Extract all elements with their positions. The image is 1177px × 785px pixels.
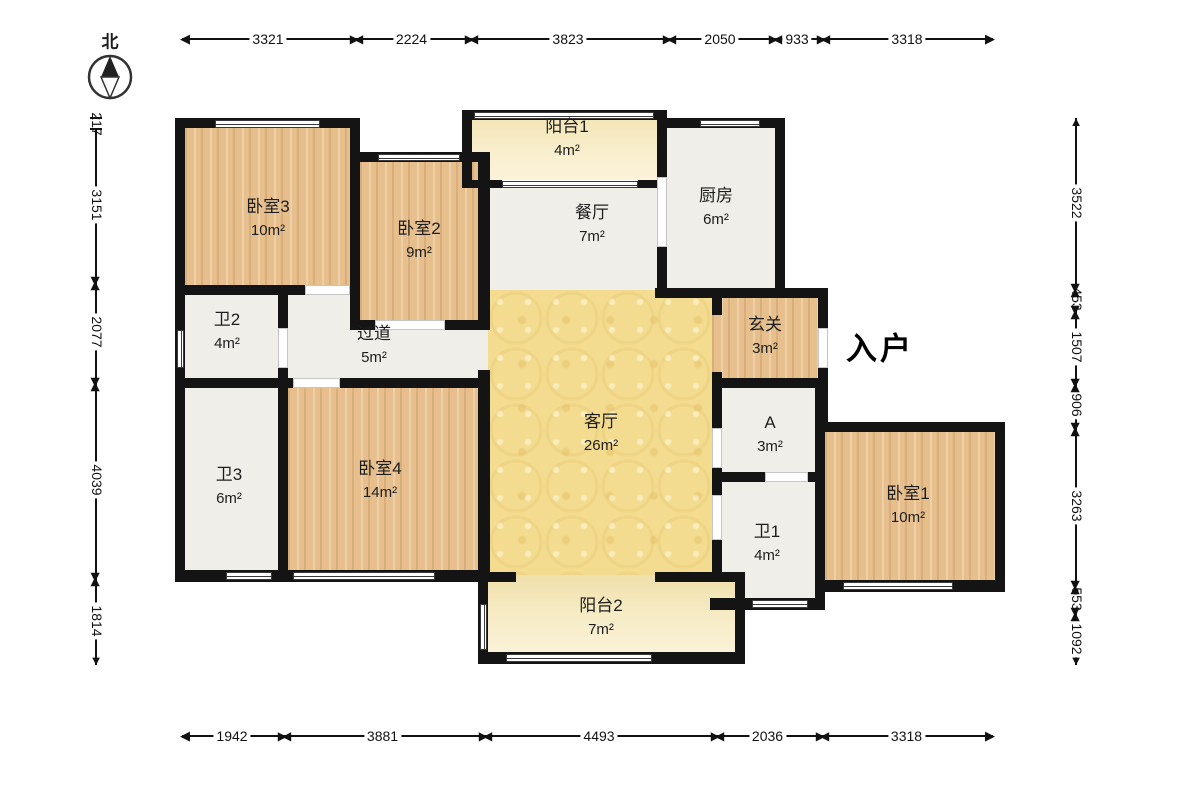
room-label-roomA: A3m²	[757, 410, 783, 458]
dimension-marker: ▶◀	[350, 33, 358, 45]
dimension-segment: 2224	[354, 38, 469, 40]
dimension-marker: ▶◀	[465, 33, 473, 45]
wall-segment	[488, 572, 516, 582]
wall-segment	[712, 472, 765, 482]
dimension-segment: 4493	[483, 735, 715, 737]
dimension-marker: ◀	[180, 730, 190, 742]
room-label-bedroom4: 卧室414m²	[358, 456, 401, 504]
wall-segment	[712, 378, 820, 388]
wall-segment	[350, 118, 360, 330]
door-opening	[278, 328, 288, 368]
room-label-balcony2: 阳台27m²	[579, 593, 622, 641]
room-label-hallway: 玄关3m²	[748, 312, 782, 360]
dimension-marker: ▶◀	[1070, 608, 1082, 616]
room-label-living: 客厅26m²	[584, 409, 618, 457]
wall-segment	[815, 422, 1005, 432]
dimension-marker: ▶◀	[817, 33, 825, 45]
wall-segment	[478, 152, 490, 328]
wall-segment	[655, 572, 745, 582]
window	[502, 181, 638, 188]
door-opening	[712, 428, 722, 468]
window	[226, 572, 272, 580]
dimension-marker: ▶	[985, 33, 995, 45]
dimension-marker: ▲	[1070, 116, 1083, 128]
room-label-kitchen: 厨房6m²	[699, 183, 733, 231]
room-label-balcony1: 阳台14m²	[545, 114, 588, 162]
floor-plan: 北	[0, 0, 1177, 785]
dimension-marker: ▶◀	[1070, 284, 1082, 292]
window	[700, 120, 760, 127]
door-opening	[765, 472, 808, 482]
dimension-segment: 1507	[1075, 310, 1077, 383]
dimension-marker	[90, 117, 102, 119]
dimension-segment: 933	[773, 38, 821, 40]
dimension-segment: 3522	[1075, 118, 1077, 288]
entry-label: 入户	[846, 324, 914, 369]
room-label-corridor: 过道5m²	[357, 321, 391, 369]
wall-segment	[478, 370, 490, 582]
dimension-marker: ▶◀	[278, 730, 286, 742]
window	[378, 154, 460, 161]
dimension-marker: ▶◀	[1070, 306, 1082, 314]
dimension-segment: 2050	[667, 38, 773, 40]
dimension-marker: ▶	[985, 730, 995, 742]
window	[177, 330, 184, 368]
room-label-bath1: 卫14m²	[754, 519, 780, 567]
dimension-marker: ▼	[1070, 655, 1083, 667]
door-opening	[657, 177, 667, 247]
dimension-marker: ▶◀	[816, 730, 824, 742]
window	[480, 604, 487, 650]
room-label-bedroom2: 卧室29m²	[397, 216, 440, 264]
door-opening	[293, 378, 340, 388]
room-label-bath2: 卫24m²	[214, 307, 240, 355]
window	[215, 120, 320, 128]
dimension-marker: ▶◀	[90, 378, 102, 386]
dimension-segment: 1942	[182, 735, 282, 737]
dimension-marker: ▶◀	[1070, 379, 1082, 387]
dimension-segment: 2036	[715, 735, 820, 737]
wall-segment	[340, 378, 490, 388]
wall-segment	[278, 388, 288, 580]
wall-segment	[735, 575, 745, 662]
wall-segment	[712, 295, 722, 315]
dimension-segment: 3151	[95, 129, 97, 281]
wall-segment	[775, 118, 785, 298]
door-opening	[712, 495, 722, 540]
entry-door-opening	[818, 328, 828, 368]
dimension-marker: ▶◀	[1070, 423, 1082, 431]
dimension-marker: ▶◀	[1070, 581, 1082, 589]
dimension-segment: 3823	[469, 38, 667, 40]
wall-segment	[462, 110, 472, 188]
dimension-segment: 2077	[95, 281, 97, 382]
dimension-marker: ▶◀	[90, 573, 102, 581]
room-label-bath3: 卫36m²	[216, 462, 242, 510]
room-label-bedroom3: 卧室310m²	[246, 194, 289, 242]
wall-segment	[655, 288, 828, 298]
north-compass-icon	[82, 49, 138, 105]
dimension-marker: ▶◀	[479, 730, 487, 742]
dimension-segment: 3881	[282, 735, 483, 737]
wall-segment	[995, 422, 1005, 592]
window	[506, 654, 652, 662]
room-label-dining: 餐厅7m²	[575, 200, 609, 248]
dimension-segment: 4039	[95, 382, 97, 577]
dimension-marker: ◀	[180, 33, 190, 45]
dimension-marker: ▶◀	[769, 33, 777, 45]
wall-segment	[818, 288, 828, 328]
dimension-marker: ▶◀	[663, 33, 671, 45]
window	[843, 582, 953, 590]
dimension-marker: ▼	[90, 655, 103, 667]
dimension-segment: 3318	[821, 38, 993, 40]
dimension-segment: 3321	[182, 38, 354, 40]
window	[752, 600, 808, 608]
room-label-bedroom1: 卧室110m²	[886, 481, 929, 529]
dimension-segment: 3318	[820, 735, 993, 737]
dimension-segment: 1814	[95, 577, 97, 665]
room-dining	[488, 188, 657, 290]
wall-segment	[462, 180, 502, 188]
door-opening	[305, 285, 350, 295]
wall-segment	[445, 320, 490, 330]
window	[293, 572, 435, 580]
wall-segment	[278, 285, 288, 328]
dimension-marker: ▶◀	[711, 730, 719, 742]
wall-segment	[175, 378, 293, 388]
dimension-segment: 906	[1075, 383, 1077, 427]
dimension-segment: 3263	[1075, 427, 1077, 585]
wall-segment	[657, 247, 667, 290]
dimension-marker	[90, 128, 102, 130]
dimension-marker: ▶◀	[90, 277, 102, 285]
